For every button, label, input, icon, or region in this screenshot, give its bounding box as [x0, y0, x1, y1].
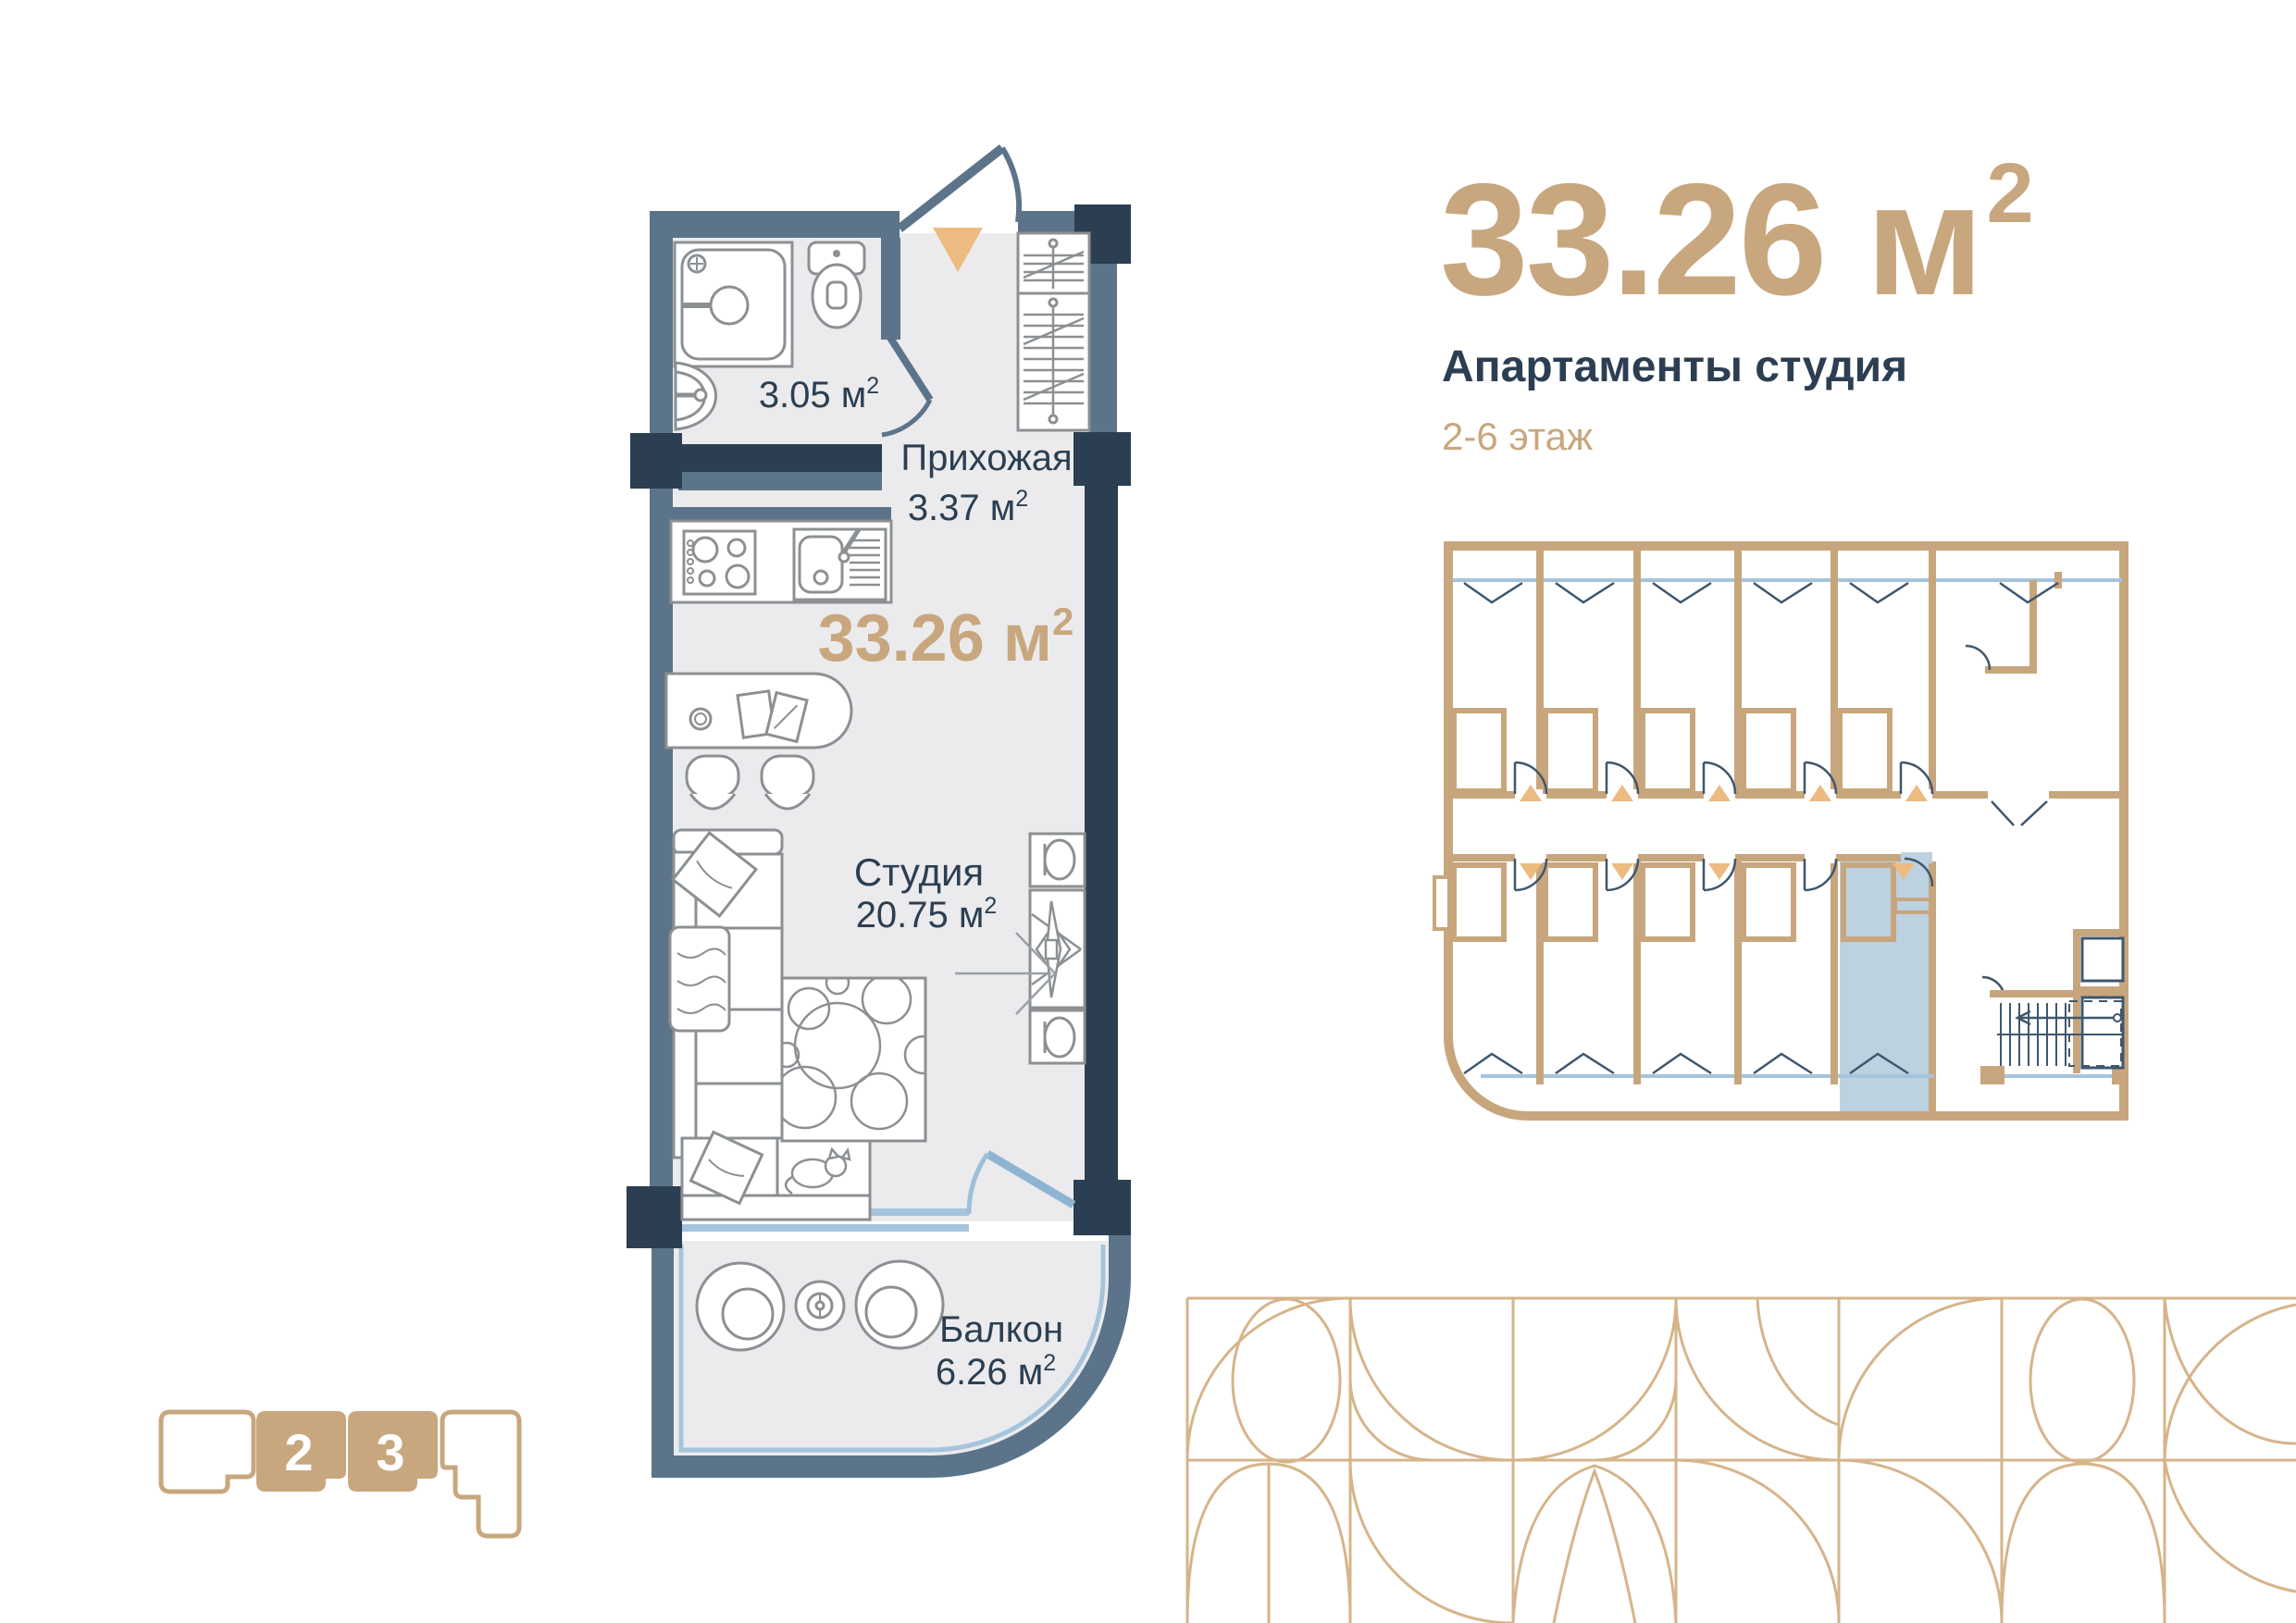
total-area-label: 33.26 м2 [818, 600, 1074, 675]
chair-icon [762, 756, 813, 809]
corridor-end-window [1434, 877, 1449, 929]
elevator-icon [2082, 938, 2123, 1068]
shower-icon [675, 242, 792, 366]
speaker-icon [1045, 840, 1074, 879]
apartment-floor-plan: 3.05 м2 Прихожая 3.37 м2 33.26 м2 Студия… [627, 148, 1131, 1467]
balcony-table-icon [796, 1282, 844, 1330]
balcony-area-label: 6.26 м2 [936, 1350, 1056, 1393]
hallway-area-label: 3.37 м2 [908, 486, 1028, 528]
blanket-icon [670, 927, 729, 1031]
decorative-pattern [1187, 1298, 2296, 1623]
top-window-line [1453, 546, 2122, 588]
kitchen [671, 521, 891, 602]
balcony-chair-icon [856, 1261, 943, 1348]
stove-icon [684, 531, 755, 594]
site-building-4[interactable] [442, 1412, 519, 1536]
site-building-3-label: 3 [376, 1423, 404, 1481]
balcony-chair-icon [697, 1263, 784, 1350]
studio-area-label: 20.75 м2 [856, 893, 998, 935]
unit-dividers [1536, 580, 2037, 1116]
title-block: 33.26 м2 Апартаменты студия 2-6 этаж [1440, 146, 2031, 458]
studio-name-label: Студия [854, 850, 984, 894]
floors-label: 2-6 этаж [1442, 415, 1593, 458]
door-arcs [1515, 646, 2047, 997]
chair-icon [687, 756, 738, 809]
bathroom-area-label: 3.05 м2 [759, 373, 879, 415]
site-map: 2 3 [161, 1411, 519, 1536]
outer-walls [1448, 546, 2124, 1116]
corridor-walls [1448, 789, 2128, 863]
scene: 3.05 м2 Прихожая 3.37 м2 33.26 м2 Студия… [0, 0, 2296, 1623]
toilet-icon [809, 242, 864, 328]
site-building-2-label: 2 [284, 1423, 313, 1481]
building-floor-plan [1434, 546, 2128, 1116]
subtitle: Апартаменты студия [1442, 342, 1907, 391]
rug [775, 972, 942, 1141]
speaker-icon [1045, 1018, 1074, 1057]
wardrobe-icon [1018, 233, 1089, 430]
balcony-door-glyphs [1464, 583, 2058, 1073]
page-title: 33.26 м2 [1440, 146, 2031, 328]
hallway-name-label: Прихожая [900, 438, 1072, 478]
balcony-name-label: Балкон [939, 1309, 1063, 1350]
kitchen-sink-icon [794, 529, 886, 600]
page: 3.05 м2 Прихожая 3.37 м2 33.26 м2 Студия… [0, 0, 2296, 1623]
site-building-1[interactable] [161, 1412, 254, 1492]
